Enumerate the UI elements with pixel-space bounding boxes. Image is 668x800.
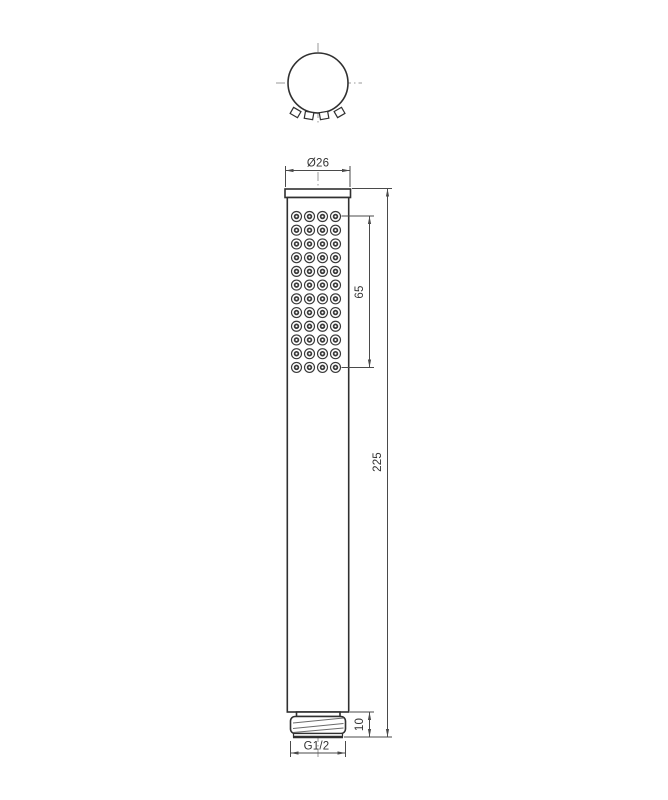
- nozzle-inner: [321, 324, 325, 328]
- nozzle-inner: [308, 352, 312, 356]
- nozzle-inner: [295, 256, 299, 260]
- nozzle-inner: [321, 215, 325, 219]
- arrow-left: [286, 169, 294, 172]
- nozzle-tab-outer-left: [290, 107, 301, 117]
- nozzle-inner: [334, 297, 338, 301]
- nozzle-inner: [295, 297, 299, 301]
- nozzle-inner: [321, 366, 325, 370]
- nozzle-inner: [308, 311, 312, 315]
- dimension-label-spray-face: 65: [354, 285, 366, 298]
- drawing-svg: Ø26 65 225 10 G1/2: [0, 0, 668, 800]
- nozzle-inner: [308, 338, 312, 342]
- nozzle-inner: [321, 338, 325, 342]
- nozzle-inner: [334, 256, 338, 260]
- nozzle-inner: [295, 228, 299, 232]
- arrow-down: [386, 729, 389, 737]
- nozzle-inner: [295, 352, 299, 356]
- nozzle-inner: [334, 283, 338, 287]
- front-view: [285, 172, 351, 757]
- dimension-label-connector-height: 10: [354, 718, 366, 731]
- nozzle-inner: [334, 311, 338, 315]
- nozzle-inner: [334, 338, 338, 342]
- nozzle-inner: [321, 242, 325, 246]
- nozzle-inner: [321, 228, 325, 232]
- nozzle-inner: [321, 256, 325, 260]
- nozzle-inner: [334, 366, 338, 370]
- arrow-up: [368, 712, 371, 720]
- nozzle-inner: [308, 215, 312, 219]
- nozzle-inner: [308, 324, 312, 328]
- nozzle-inner: [334, 324, 338, 328]
- nozzle-inner: [334, 228, 338, 232]
- nozzle-inner: [334, 269, 338, 273]
- dimension-label-overall-length: 225: [372, 452, 384, 472]
- arrow-down: [368, 729, 371, 737]
- arrow-down: [368, 360, 371, 368]
- dimension-label-thread-size: G1/2: [304, 741, 330, 753]
- nozzle-inner: [334, 352, 338, 356]
- nozzle-inner: [295, 242, 299, 246]
- nozzle-inner: [295, 215, 299, 219]
- arrow-right: [342, 169, 350, 172]
- top-view: [276, 43, 362, 124]
- dimension-connector-height: 10: [350, 712, 374, 737]
- nozzle-tab-inner-right: [319, 111, 329, 119]
- arrow-right: [338, 751, 346, 754]
- nozzle-tab-inner-left: [304, 111, 314, 119]
- arrow-left: [291, 751, 299, 754]
- nozzle-inner: [308, 256, 312, 260]
- bottom-connector: [291, 712, 346, 737]
- nozzle-inner: [295, 269, 299, 273]
- arrow-up: [386, 189, 389, 197]
- dimension-label-diameter: Ø26: [307, 158, 329, 170]
- nozzle-inner: [321, 297, 325, 301]
- nozzle-inner: [308, 269, 312, 273]
- nozzle-inner: [321, 283, 325, 287]
- nozzle-tab-outer-right: [334, 107, 345, 117]
- nozzle-inner: [334, 215, 338, 219]
- nozzle-inner: [295, 283, 299, 287]
- nozzle-inner: [334, 242, 338, 246]
- nozzle-inner: [308, 242, 312, 246]
- top-view-body-circle: [288, 53, 348, 113]
- nozzle-inner: [308, 366, 312, 370]
- nozzle-inner: [295, 324, 299, 328]
- nozzle-inner: [308, 283, 312, 287]
- nozzle-inner: [308, 228, 312, 232]
- nozzle-inner: [295, 338, 299, 342]
- dimension-overall-length: 225: [344, 189, 392, 738]
- nozzle-inner: [295, 366, 299, 370]
- nozzle-inner: [321, 352, 325, 356]
- technical-drawing-canvas: Ø26 65 225 10 G1/2: [0, 0, 668, 800]
- handle-top-cap: [285, 189, 351, 198]
- nozzle-inner: [321, 311, 325, 315]
- nozzle-inner: [295, 311, 299, 315]
- arrow-up: [368, 216, 371, 224]
- nozzle-inner: [321, 269, 325, 273]
- nozzle-inner: [308, 297, 312, 301]
